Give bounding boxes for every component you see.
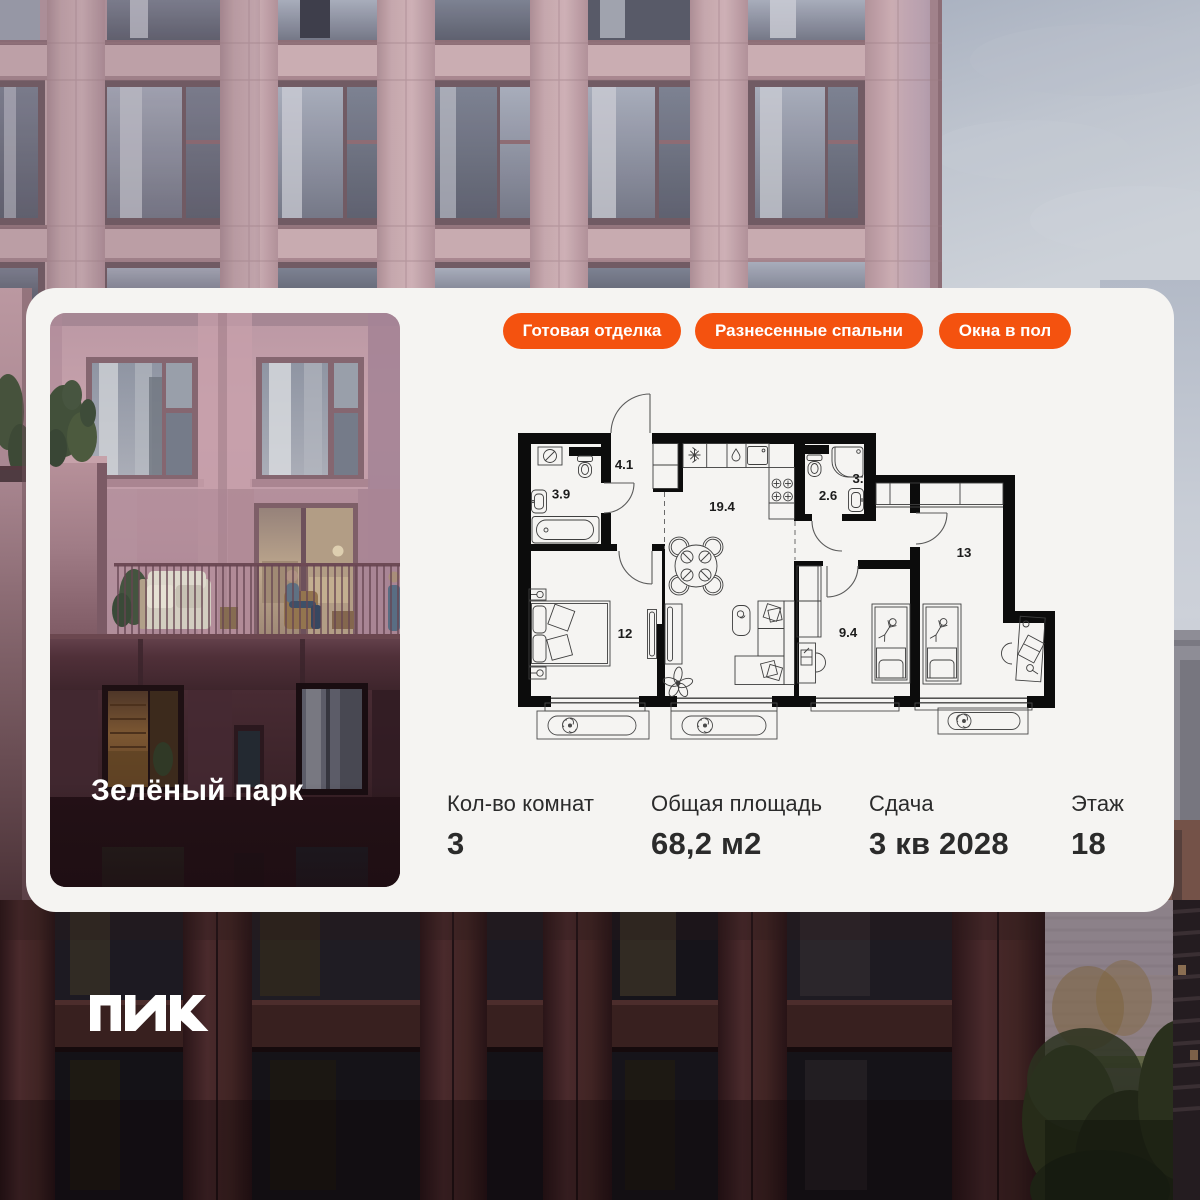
svg-text:2.6: 2.6	[819, 488, 837, 503]
svg-text:12: 12	[618, 626, 633, 641]
svg-text:3.9: 3.9	[552, 487, 570, 502]
svg-text:9.4: 9.4	[839, 625, 858, 640]
svg-text:13: 13	[957, 545, 972, 560]
svg-text:3.: 3.	[853, 471, 864, 486]
svg-text:4.1: 4.1	[615, 457, 633, 472]
svg-text:19.4: 19.4	[709, 499, 735, 514]
